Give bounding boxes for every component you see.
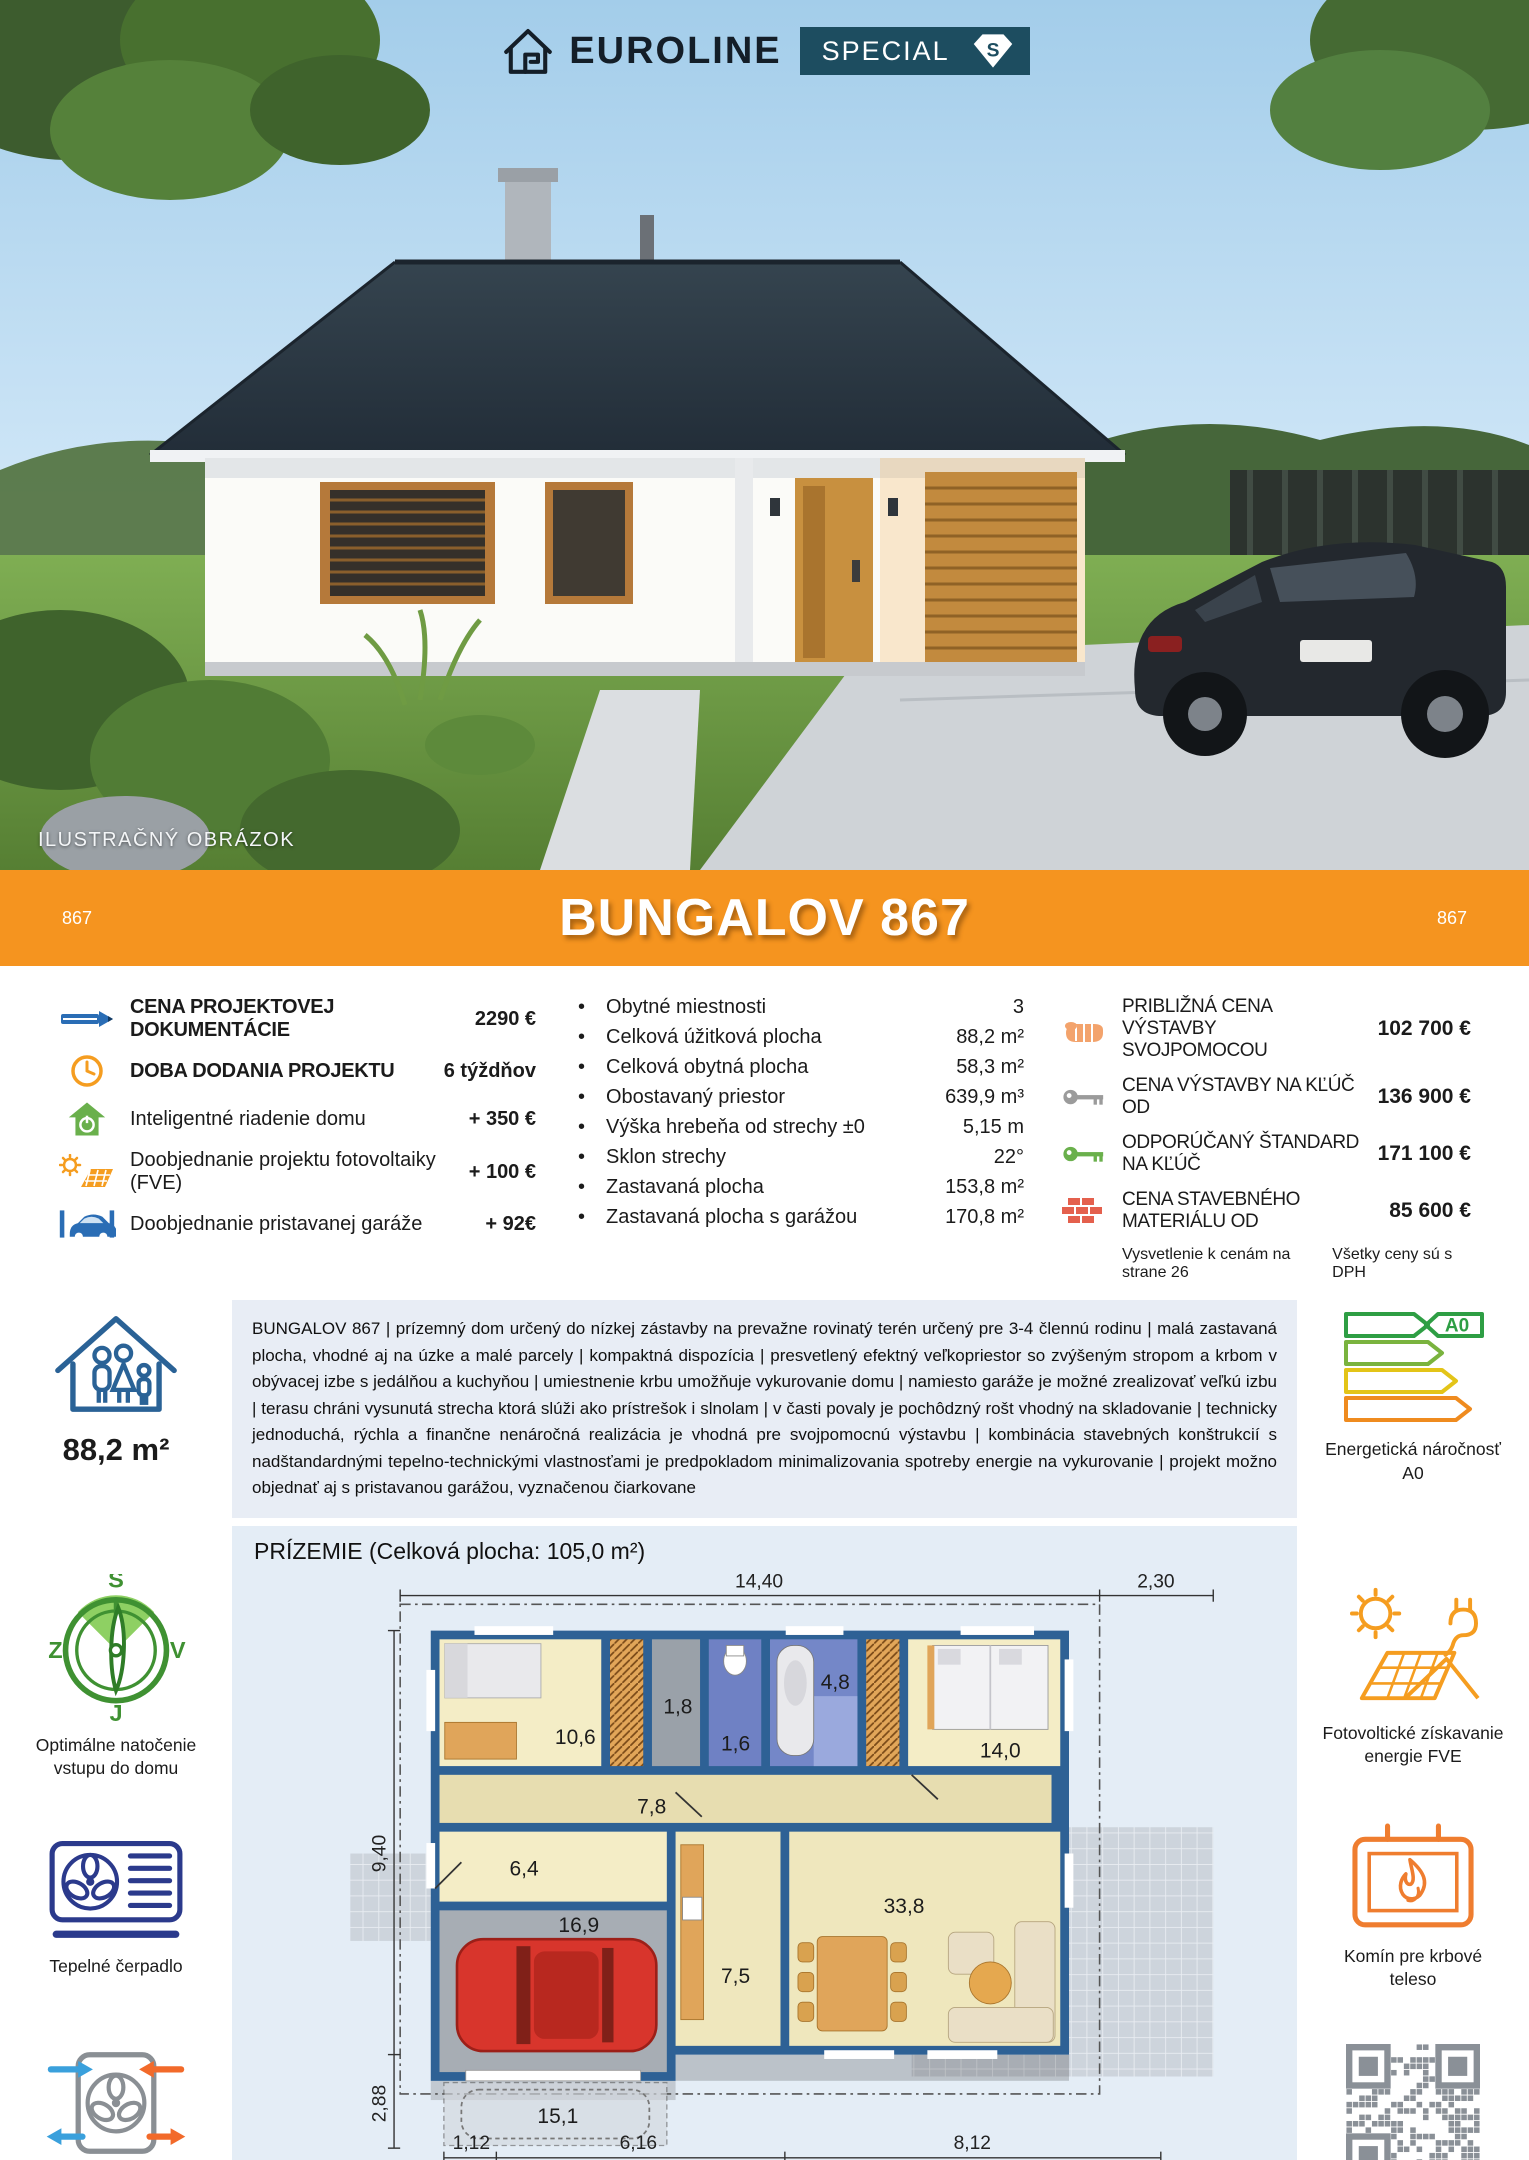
price-value: 102 700 € [1378, 1017, 1471, 1041]
svg-text:J: J [109, 1699, 122, 1721]
energy-label-icon: A0 [1338, 1308, 1488, 1426]
garage-door [925, 472, 1077, 666]
key-green-icon [1060, 1144, 1108, 1164]
svg-text:2,88: 2,88 [369, 2084, 390, 2121]
spec-label: Výška hrebeňa od strechy ±0 [606, 1116, 963, 1139]
svg-text:14,40: 14,40 [735, 1571, 783, 1592]
family-house-block: 88,2 m² [0, 1300, 232, 1468]
price-label: ODPORÚČANÝ ŠTANDARD NA KĽÚČ [1122, 1132, 1364, 1176]
price-row: CENA STAVEBNÉHO MATERIÁLU OD 85 600 € [1060, 1189, 1471, 1233]
price-row: PRIBLIŽNÁ CENA VÝSTAVBY SVOJPOMOCOU 102 … [1060, 996, 1471, 1062]
price-value: 171 100 € [1378, 1142, 1471, 1166]
specs-strip: CENA PROJEKTOVEJ DOKUMENTÁCIE 2290 € DOB… [0, 966, 1529, 1294]
floorplan-row: S V J Z Optimálne natočenie vstupu do do… [0, 1526, 1529, 2160]
floorplan-drawing: 10,6 1,8 1,6 4,8 14,0 7,8 6,4 33,8 7,5 1… [248, 1565, 1278, 2160]
bricks-icon [1060, 1197, 1108, 1225]
bullet-icon: • [572, 1116, 606, 1139]
chimney-icon [1346, 1821, 1480, 1933]
bullet-icon: • [572, 1206, 606, 1229]
svg-text:33,8: 33,8 [884, 1895, 925, 1918]
special-badge: SPECIAL S [800, 27, 1030, 75]
red-car [457, 1939, 656, 2051]
svg-text:9,40: 9,40 [369, 1834, 390, 1871]
compass-block: S V J Z Optimálne natočenie vstupu do do… [24, 1574, 209, 1781]
order-label: Inteligentné riadenie domu [130, 1108, 455, 1131]
svg-text:7,5: 7,5 [721, 1965, 750, 1988]
photo-caption: ILUSTRAČNÝ OBRÁZOK [38, 829, 295, 852]
floorplan-title: PRÍZEMIE (Celková plocha: 105,0 m²) [254, 1538, 1281, 1565]
heat-pump-label: Tepelné čerpadlo [49, 1955, 182, 1979]
smart-home-icon [58, 1100, 116, 1138]
svg-text:S: S [986, 41, 999, 62]
right-feature-column: Fotovoltické získavanie energie FVE Komí… [1297, 1526, 1529, 2160]
spec-label: Celková úžitková plocha [606, 1026, 956, 1049]
svg-text:1,8: 1,8 [663, 1695, 692, 1718]
energy-class-label: Energetická náročnosť A0 [1321, 1438, 1506, 1485]
key-gray-icon [1060, 1087, 1108, 1107]
build-prices-column: PRIBLIŽNÁ CENA VÝSTAVBY SVOJPOMOCOU 102 … [1060, 996, 1471, 1282]
floorplan-panel: PRÍZEMIE (Celková plocha: 105,0 m²) [232, 1526, 1297, 2160]
clock-icon [58, 1053, 116, 1089]
price-note-right: Všetky ceny sú s DPH [1332, 1246, 1471, 1282]
euroline-house-icon [499, 24, 557, 78]
price-label: CENA VÝSTAVBY NA KĽÚČ OD [1122, 1075, 1364, 1119]
catalog-page: EUROLINE SPECIAL S ILUSTRAČNÝ OBRÁZOK 86… [0, 0, 1529, 2160]
price-row: ODPORÚČANÝ ŠTANDARD NA KĽÚČ 171 100 € [1060, 1132, 1471, 1176]
order-value: 2290 € [475, 1008, 536, 1031]
tech-specs-column: •Obytné miestnosti3 •Celková úžitková pl… [572, 996, 1024, 1282]
house-illustration [0, 0, 1529, 870]
spec-label: Sklon strechy [606, 1146, 994, 1169]
price-row: CENA VÝSTAVBY NA KĽÚČ OD 136 900 € [1060, 1075, 1471, 1119]
bullet-icon: • [572, 1086, 606, 1109]
qr-block: Link na Web [1342, 2040, 1484, 2160]
price-label: CENA STAVEBNÉHO MATERIÁLU OD [1122, 1189, 1375, 1233]
bullet-icon: • [572, 996, 606, 1019]
spec-value: 153,8 m² [945, 1176, 1024, 1199]
order-value: 6 týždňov [444, 1060, 536, 1083]
svg-text:16,9: 16,9 [558, 1914, 599, 1937]
project-description: BUNGALOV 867 | prízemný dom určený do ní… [232, 1300, 1297, 1518]
project-code-left: 867 [62, 908, 142, 929]
order-label: Doobjednanie pristavanej garáže [130, 1213, 471, 1236]
svg-text:10,6: 10,6 [555, 1726, 596, 1749]
price-value: 85 600 € [1389, 1199, 1471, 1223]
bullet-icon: • [572, 1146, 606, 1169]
svg-text:2,30: 2,30 [1137, 1571, 1174, 1592]
qr-code [1346, 2044, 1480, 2160]
order-label: Doobjednanie projektu fotovoltaiky (FVE) [130, 1149, 455, 1195]
svg-text:6,16: 6,16 [620, 2133, 657, 2154]
price-note-left: Vysvetlenie k cenám na strane 26 [1122, 1246, 1332, 1282]
spec-value: 58,3 m² [956, 1056, 1024, 1079]
spec-row: •Zastavaná plocha s garážou170,8 m² [572, 1206, 1024, 1229]
spec-value: 88,2 m² [956, 1026, 1024, 1049]
spec-row: •Zastavaná plocha153,8 m² [572, 1176, 1024, 1199]
svg-text:1,6: 1,6 [721, 1732, 750, 1755]
window-small [545, 482, 633, 604]
svg-text:S: S [108, 1574, 124, 1592]
heat-pump-block: Tepelné čerpadlo [48, 1839, 184, 1979]
svg-text:Z: Z [48, 1637, 62, 1663]
brand-header: EUROLINE SPECIAL S [0, 24, 1529, 78]
svg-text:14,0: 14,0 [980, 1739, 1021, 1762]
price-label: PRIBLIŽNÁ CENA VÝSTAVBY SVOJPOMOCOU [1122, 996, 1364, 1062]
garage-car-icon [58, 1206, 116, 1242]
order-label: DOBA DODANIA PROJEKTU [130, 1060, 430, 1083]
spec-label: Zastavaná plocha [606, 1176, 945, 1199]
spec-value: 5,15 m [963, 1116, 1024, 1139]
svg-text:A0: A0 [1445, 1316, 1469, 1337]
spec-value: 639,9 m³ [945, 1086, 1024, 1109]
pencil-icon [58, 1007, 116, 1031]
spec-row: •Sklon strechy22° [572, 1146, 1024, 1169]
hand-icon [1060, 1013, 1108, 1045]
price-value: 136 900 € [1378, 1085, 1471, 1109]
order-row: Inteligentné riadenie domu + 350 € [58, 1100, 536, 1138]
spec-row: •Obytné miestnosti3 [572, 996, 1024, 1019]
pv-block: Fotovoltické získavanie energie FVE [1321, 1582, 1506, 1769]
svg-text:7,8: 7,8 [637, 1795, 666, 1818]
bullet-icon: • [572, 1176, 606, 1199]
title-banner: 867 BUNGALOV 867 867 [0, 870, 1529, 966]
bullet-icon: • [572, 1056, 606, 1079]
order-value: + 350 € [469, 1108, 536, 1131]
svg-text:6,4: 6,4 [509, 1857, 538, 1880]
project-code-right: 867 [1387, 908, 1467, 929]
order-info-column: CENA PROJEKTOVEJ DOKUMENTÁCIE 2290 € DOB… [58, 996, 536, 1282]
usable-area-value: 88,2 m² [63, 1432, 170, 1468]
heat-pump-icon [48, 1839, 184, 1943]
spec-row: •Výška hrebeňa od strechy ±05,15 m [572, 1116, 1024, 1139]
svg-text:1,12: 1,12 [453, 2133, 490, 2154]
bullet-icon: • [572, 1026, 606, 1049]
spec-value: 3 [1013, 996, 1024, 1019]
chimney-label: Komín pre krbové teleso [1321, 1945, 1506, 1992]
price-notes: Vysvetlenie k cenám na strane 26 Všetky … [1060, 1246, 1471, 1282]
order-row: Doobjednanie pristavanej garáže + 92€ [58, 1206, 536, 1242]
order-value: + 100 € [469, 1161, 536, 1184]
spec-row: •Obostavaný priestor639,9 m³ [572, 1086, 1024, 1109]
special-badge-label: SPECIAL [822, 36, 950, 67]
order-row: Doobjednanie projektu fotovoltaiky (FVE)… [58, 1149, 536, 1195]
window-blinds [320, 482, 495, 604]
compass-icon: S V J Z [46, 1574, 186, 1722]
spec-row: •Celková obytná plocha58,3 m² [572, 1056, 1024, 1079]
order-value: + 92€ [485, 1213, 536, 1236]
spec-value: 170,8 m² [945, 1206, 1024, 1229]
spec-label: Obostavaný priestor [606, 1086, 945, 1109]
chimney-block: Komín pre krbové teleso [1321, 1821, 1506, 1992]
front-door [795, 478, 873, 666]
spec-label: Obytné miestnosti [606, 996, 1013, 1019]
gem-s-icon: S [972, 31, 1014, 71]
ventilation-icon [46, 2040, 186, 2160]
spec-label: Zastavaná plocha s garážou [606, 1206, 945, 1229]
left-feature-column: S V J Z Optimálne natočenie vstupu do do… [0, 1526, 232, 2160]
spec-label: Celková obytná plocha [606, 1056, 956, 1079]
brand-name: EUROLINE [569, 30, 781, 73]
pv-label: Fotovoltické získavanie energie FVE [1321, 1722, 1506, 1769]
house-family-icon [51, 1308, 181, 1420]
ventilation-block: Vetranie s rekuperáciou tepla [24, 2040, 209, 2160]
house-photo: EUROLINE SPECIAL S ILUSTRAČNÝ OBRÁZOK [0, 0, 1529, 870]
svg-text:15,1: 15,1 [537, 2104, 578, 2127]
svg-text:V: V [170, 1637, 186, 1663]
photovoltaic-icon [1342, 1582, 1484, 1710]
spec-row: •Celková úžitková plocha88,2 m² [572, 1026, 1024, 1049]
compass-label: Optimálne natočenie vstupu do domu [24, 1734, 209, 1781]
order-row: DOBA DODANIA PROJEKTU 6 týždňov [58, 1053, 536, 1089]
page-title: BUNGALOV 867 [142, 888, 1387, 948]
energy-class-block: A0 Energetická náročnosť A0 [1297, 1300, 1529, 1485]
order-label: CENA PROJEKTOVEJ DOKUMENTÁCIE [130, 996, 461, 1042]
solar-project-icon [58, 1154, 116, 1190]
svg-text:8,12: 8,12 [954, 2133, 991, 2154]
svg-text:4,8: 4,8 [821, 1671, 850, 1694]
description-row: 88,2 m² BUNGALOV 867 | prízemný dom urče… [0, 1300, 1529, 1518]
order-row: CENA PROJEKTOVEJ DOKUMENTÁCIE 2290 € [58, 996, 536, 1042]
spec-value: 22° [994, 1146, 1024, 1169]
